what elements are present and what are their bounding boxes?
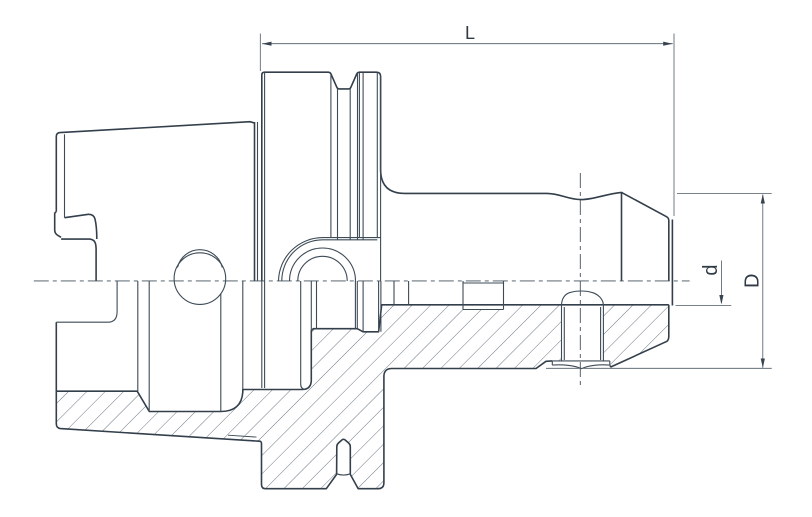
svg-text:L: L (465, 23, 475, 43)
svg-text:d: d (700, 264, 722, 275)
svg-text:D: D (742, 274, 764, 288)
